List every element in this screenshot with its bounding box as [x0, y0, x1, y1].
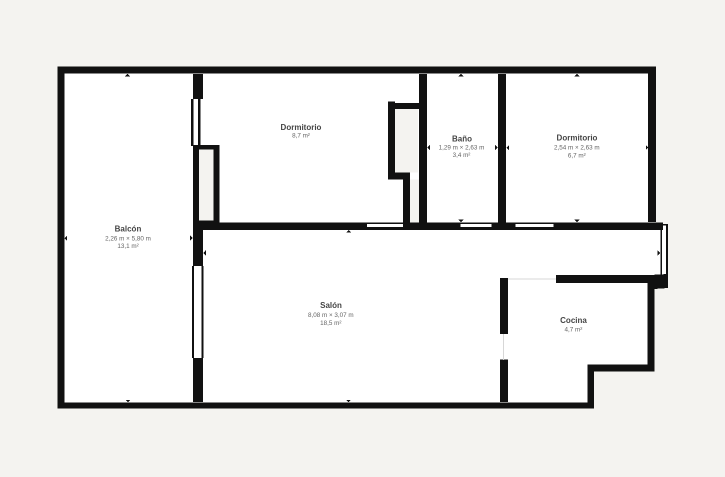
svg-text:1,29 m × 2,63 m: 1,29 m × 2,63 m	[439, 144, 485, 151]
svg-text:8,08 m × 3,07 m: 8,08 m × 3,07 m	[308, 312, 354, 319]
svg-text:3,4 m²: 3,4 m²	[453, 152, 471, 159]
svg-text:Balcón: Balcón	[115, 225, 142, 234]
svg-text:2,26 m × 5,80 m: 2,26 m × 5,80 m	[105, 235, 151, 242]
svg-text:Dormitorio: Dormitorio	[281, 123, 322, 132]
svg-text:Baño: Baño	[452, 135, 472, 144]
svg-text:Dormitorio: Dormitorio	[557, 134, 598, 143]
svg-text:4,7 m²: 4,7 m²	[564, 327, 582, 334]
svg-text:2,54 m × 2,63 m: 2,54 m × 2,63 m	[554, 144, 600, 151]
svg-text:Cocina: Cocina	[560, 316, 587, 325]
svg-text:Salón: Salón	[320, 301, 342, 310]
svg-text:6,7 m²: 6,7 m²	[568, 153, 586, 160]
svg-text:8,7 m²: 8,7 m²	[292, 132, 310, 139]
svg-text:13,1 m²: 13,1 m²	[117, 243, 138, 250]
svg-text:18,5 m²: 18,5 m²	[320, 320, 341, 327]
